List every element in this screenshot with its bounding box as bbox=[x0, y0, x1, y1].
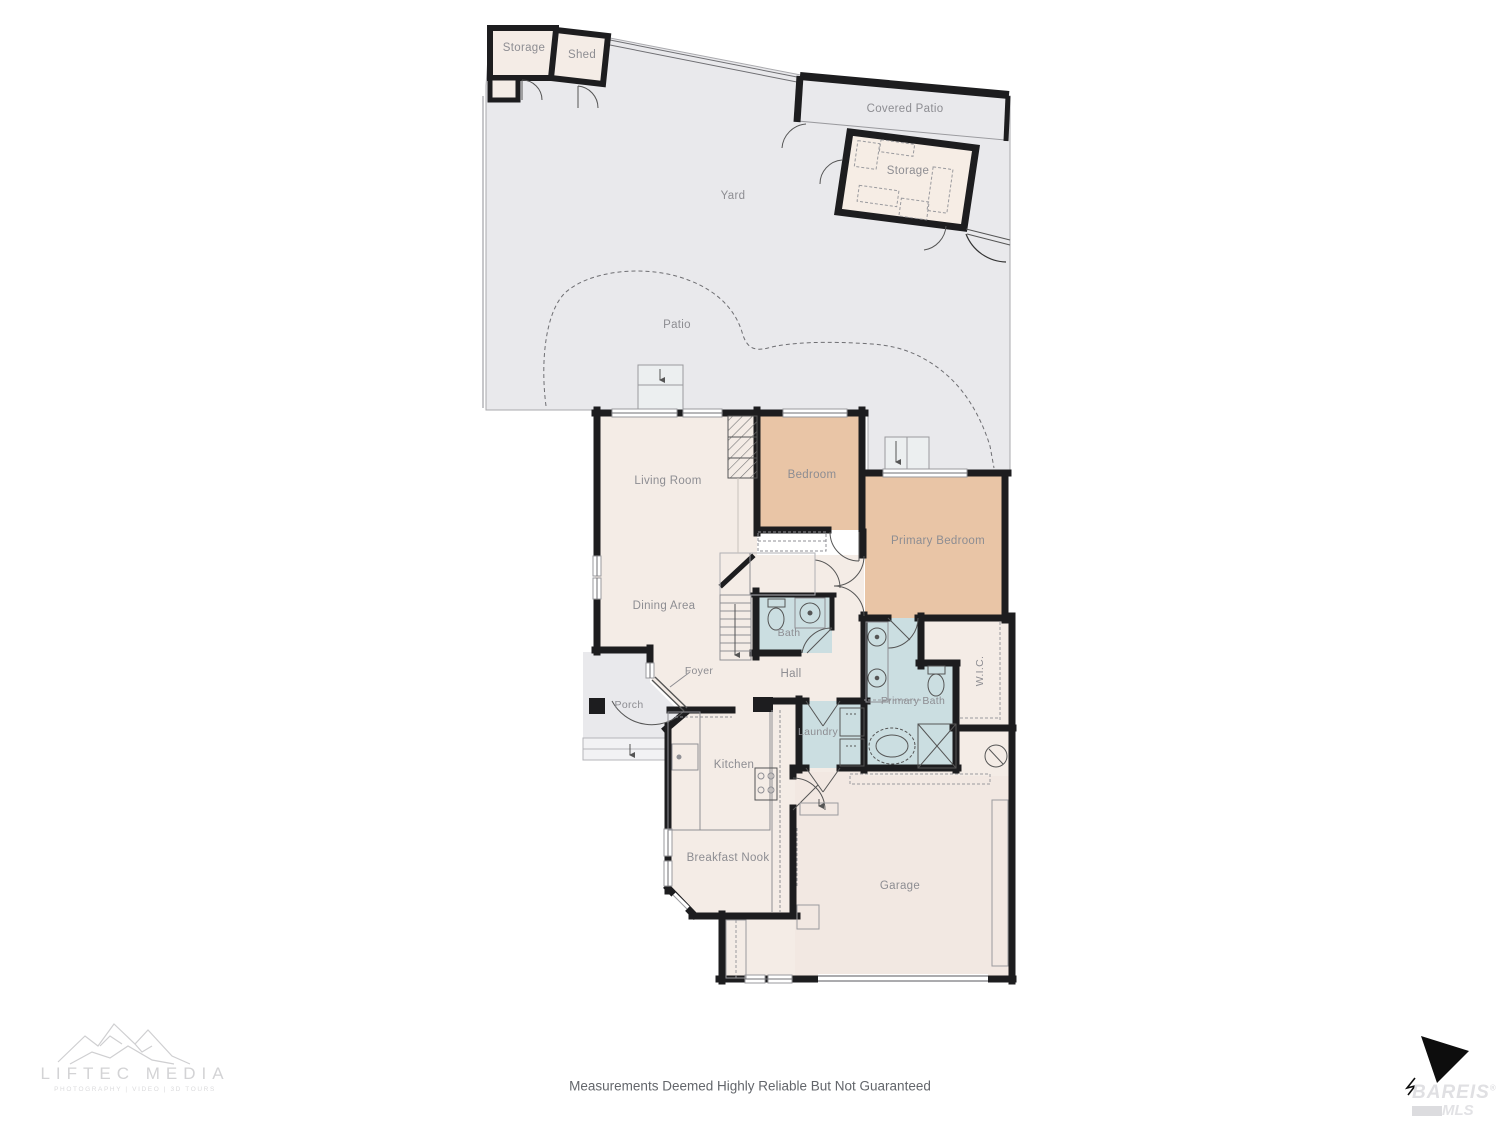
room-label-kitchen: Kitchen bbox=[714, 759, 754, 771]
room-label-bedroom: Bedroom bbox=[788, 469, 837, 481]
mls-logo: BAREIS® MLS bbox=[1398, 1030, 1498, 1120]
room-label-wic: W.I.C. bbox=[974, 656, 986, 686]
room-label-bath: Bath bbox=[778, 627, 801, 639]
room-label-covered-patio: Covered Patio bbox=[867, 103, 944, 115]
mls-logo-name: BAREIS® bbox=[1412, 1082, 1497, 1104]
disclaimer-text: Measurements Deemed Highly Reliable But … bbox=[569, 1079, 931, 1094]
room-label-primary-bath: Primary Bath bbox=[881, 695, 945, 707]
mls-logo-reg: ® bbox=[1490, 1084, 1497, 1093]
room-label-living-room: Living Room bbox=[634, 475, 701, 487]
room-label-storage-shed: Storage bbox=[503, 42, 545, 54]
floorplan-page: Storage Shed Covered Patio Storage Yard … bbox=[0, 0, 1500, 1125]
room-label-garage: Garage bbox=[880, 880, 920, 892]
room-label-breakfast-nook: Breakfast Nook bbox=[687, 852, 770, 864]
room-label-yard: Yard bbox=[721, 190, 746, 202]
bath-floor bbox=[756, 595, 832, 653]
kitchen-column bbox=[753, 697, 773, 712]
room-label-dining-area: Dining Area bbox=[633, 600, 696, 612]
room-label-patio: Patio bbox=[663, 319, 691, 331]
room-label-primary-bedroom: Primary Bedroom bbox=[891, 535, 985, 547]
room-label-laundry: Laundry bbox=[798, 726, 838, 738]
room-label-foyer: Foyer bbox=[685, 665, 713, 677]
mls-logo-bar bbox=[1412, 1106, 1442, 1116]
mls-logo-sub: MLS bbox=[1442, 1102, 1474, 1119]
floorplan-drawing bbox=[0, 0, 1500, 1125]
room-label-hall: Hall bbox=[780, 668, 801, 680]
photographer-logo: LIFTEC MEDIA PHOTOGRAPHY | VIDEO | 3D TO… bbox=[40, 1012, 230, 1112]
photographer-logo-tagline: PHOTOGRAPHY | VIDEO | 3D TOURS bbox=[54, 1086, 216, 1093]
room-label-storage-building: Storage bbox=[887, 165, 929, 177]
porch-post bbox=[589, 698, 605, 714]
room-label-shed: Shed bbox=[568, 49, 596, 61]
photographer-logo-name: LIFTEC MEDIA bbox=[40, 1064, 229, 1084]
room-label-porch: Porch bbox=[615, 699, 644, 711]
